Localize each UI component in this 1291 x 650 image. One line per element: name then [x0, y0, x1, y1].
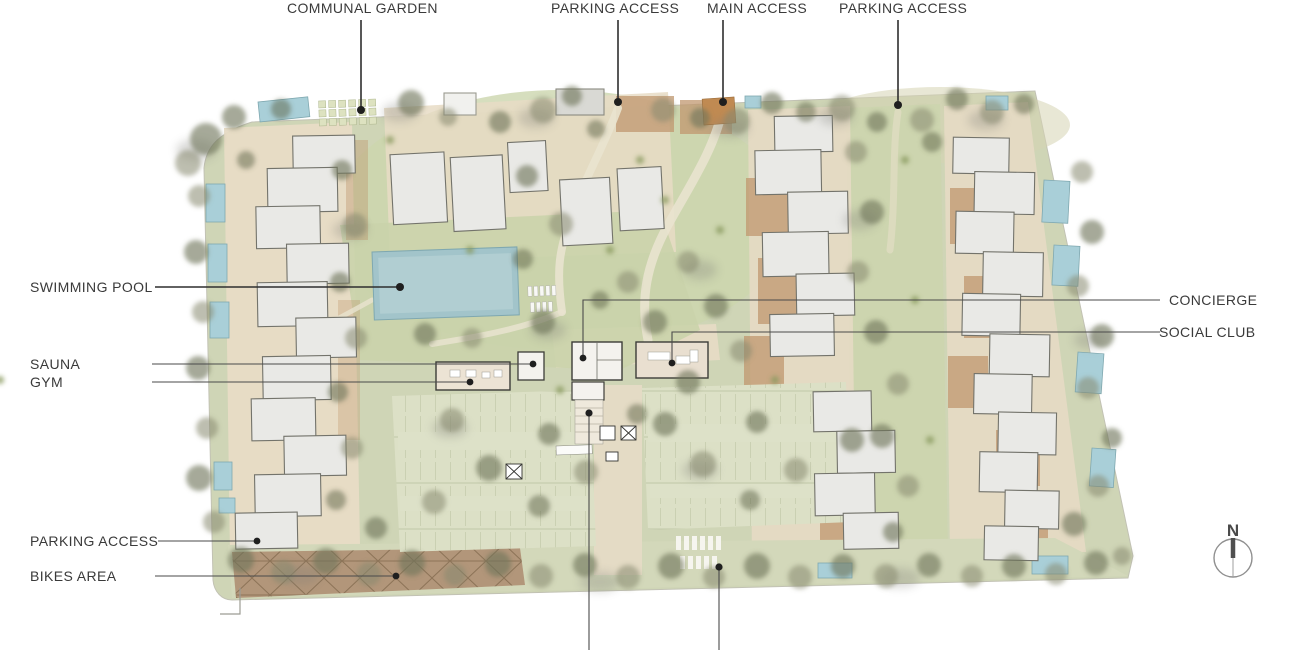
label-main-access: MAIN ACCESS [707, 0, 807, 16]
site-plan-page: N COMMUNAL GARDEN PARKING ACCESS MAIN AC… [0, 0, 1291, 650]
label-gym: GYM [30, 374, 63, 390]
label-concierge: CONCIERGE [1169, 292, 1257, 308]
site-plan-illustration: N [0, 0, 1291, 650]
canopy [556, 445, 592, 455]
label-sauna: SAUNA [30, 356, 80, 372]
label-communal-garden: COMMUNAL GARDEN [287, 0, 438, 16]
label-bikes-area: BIKES AREA [30, 568, 116, 584]
label-parking-access-top-east: PARKING ACCESS [839, 0, 967, 16]
label-parking-access-west: PARKING ACCESS [30, 533, 158, 549]
label-parking-access-top-west: PARKING ACCESS [551, 0, 679, 16]
label-swimming-pool: SWIMMING POOL [30, 279, 153, 295]
label-social-club: SOCIAL CLUB [1159, 324, 1255, 340]
swimming-pool-shape [372, 247, 519, 320]
north-compass: N [1214, 521, 1252, 577]
compass-north-letter: N [1227, 521, 1239, 540]
